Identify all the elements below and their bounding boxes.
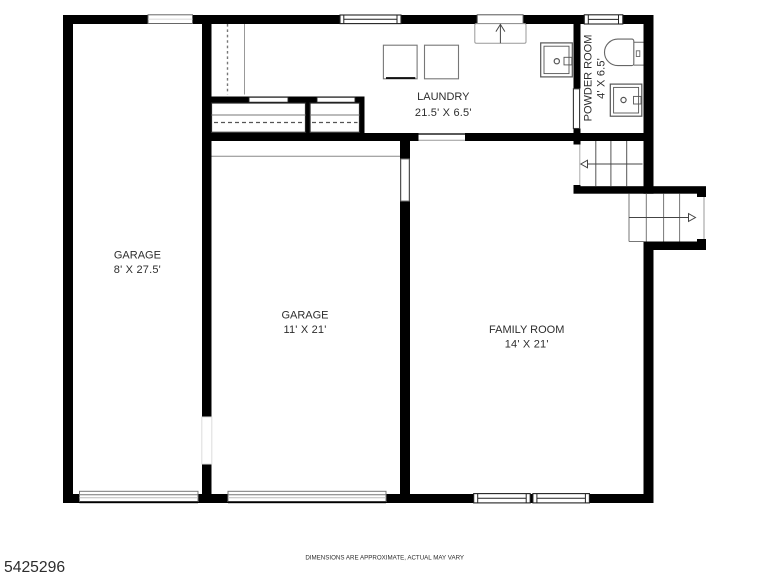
svg-text:14' X 21': 14' X 21' — [505, 339, 549, 351]
svg-text:FAMILY ROOM: FAMILY ROOM — [489, 324, 564, 336]
svg-text:8' X 27.5': 8' X 27.5' — [114, 264, 161, 276]
svg-text:4' X 6.5': 4' X 6.5' — [596, 58, 608, 99]
svg-text:DIMENSIONS ARE APPROXIMATE, AC: DIMENSIONS ARE APPROXIMATE, ACTUAL MAY V… — [305, 554, 464, 561]
svg-text:GARAGE: GARAGE — [281, 310, 328, 322]
svg-text:GARAGE: GARAGE — [114, 250, 161, 262]
svg-text:5425296: 5425296 — [4, 559, 65, 576]
svg-text:POWDER ROOM: POWDER ROOM — [582, 35, 594, 122]
svg-text:21.5' X 6.5': 21.5' X 6.5' — [415, 107, 472, 119]
svg-text:LAUNDRY: LAUNDRY — [417, 91, 470, 103]
svg-text:11' X 21': 11' X 21' — [283, 324, 326, 336]
